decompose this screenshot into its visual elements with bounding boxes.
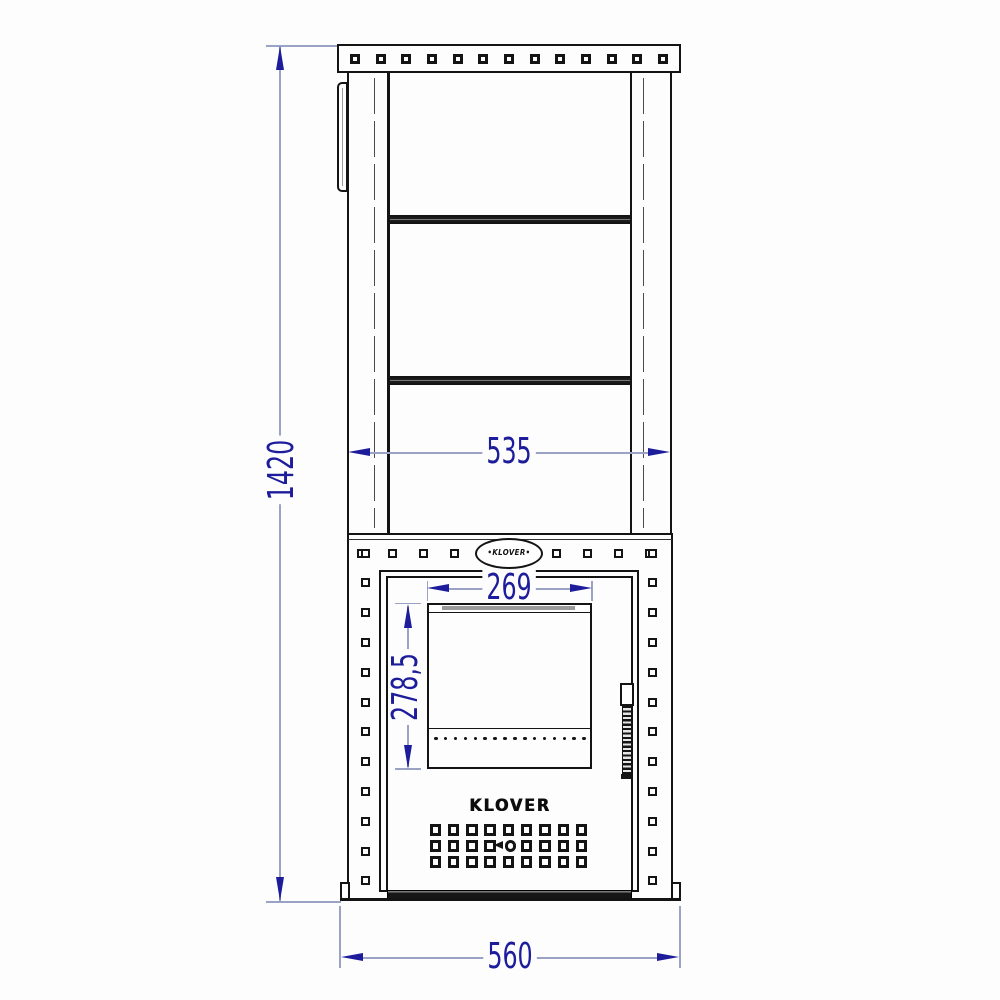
glass-vent-dot [483, 737, 487, 741]
glass-vent-dot [563, 737, 567, 741]
side-bracket-tab-line [342, 88, 343, 186]
body-hole [361, 876, 370, 885]
vent-hole [466, 856, 478, 868]
glass-vent-dot [474, 737, 478, 741]
body-hole [361, 698, 370, 707]
glass-vent-dot [434, 737, 438, 741]
dim-height-arrow-up [276, 46, 284, 70]
glass-vent-dot [464, 737, 468, 741]
dim-base-width-ext-right [679, 906, 681, 968]
body-hole [419, 549, 428, 558]
glass-vent-dot [572, 737, 576, 741]
body-top-holes-left [357, 549, 459, 558]
glass-vent-dot [493, 737, 497, 741]
chimney-top-flange [337, 44, 681, 73]
dim-base-width-arrow-right [657, 953, 679, 961]
body-right-holes [648, 549, 657, 886]
vent-hole [448, 840, 460, 852]
shaft-right-outer-edge [670, 71, 673, 534]
flange-hole [401, 54, 411, 64]
vent-hole [558, 856, 570, 868]
body-hole [648, 787, 657, 796]
body-hole [614, 549, 623, 558]
brand-badge-oval: •KLOVER• [475, 538, 543, 569]
dim-glass-height-arrow-down [404, 745, 412, 769]
body-hole [361, 549, 370, 558]
body-hole [361, 608, 370, 617]
door-handle-rod [622, 705, 632, 775]
glass-vent-dots [434, 736, 586, 742]
body-hole [361, 847, 370, 856]
body-hole [388, 549, 397, 558]
body-hole [648, 757, 657, 766]
body-hole [648, 847, 657, 856]
shaft-right-rivet-line [643, 78, 644, 528]
dim-shaft-width-arrow-right [648, 448, 670, 456]
shaft-left-outer-edge [347, 71, 350, 534]
door-handle-base [621, 774, 633, 779]
vent-hole [539, 840, 551, 852]
vent-hole [430, 824, 442, 836]
window-top-band-glass-strip [442, 606, 575, 611]
vent-hole [521, 856, 533, 868]
shaft-left-inner-edge [387, 71, 390, 534]
dim-height-arrow-down [276, 877, 284, 901]
vent-grid-row [430, 856, 588, 868]
dim-shaft-width-arrow-left [348, 448, 370, 456]
dim-glass-height-label: 278,5 [388, 649, 424, 725]
vent-hole [484, 856, 496, 868]
body-hole [648, 638, 657, 647]
vent-hole [539, 856, 551, 868]
window-separator-line [429, 728, 590, 730]
vent-hole [430, 840, 442, 852]
vent-hole [521, 824, 533, 836]
flange-hole [530, 54, 540, 64]
flange-hole [350, 54, 360, 64]
body-hole [648, 608, 657, 617]
flange-hole [427, 54, 437, 64]
flange-hole [478, 54, 488, 64]
vent-grid-row [430, 840, 588, 852]
glass-vent-dot [582, 737, 586, 741]
flange-hole [504, 54, 514, 64]
dim-shaft-width-label: 535 [482, 434, 535, 470]
flange-hole [607, 54, 617, 64]
vent-hole [466, 840, 478, 852]
dim-glass-height-arrow-up [404, 604, 412, 628]
glass-vent-dot [543, 737, 547, 741]
flange-hole [581, 54, 591, 64]
base-bottom-line [340, 898, 681, 902]
body-hole [648, 727, 657, 736]
body-hole [648, 876, 657, 885]
dim-glass-width-label: 269 [482, 570, 535, 606]
dim-base-width-label: 560 [483, 939, 536, 975]
vent-hole [576, 840, 588, 852]
dim-glass-width-arrow-right [570, 584, 592, 592]
body-hole [361, 817, 370, 826]
dim-base-width-arrow-left [341, 953, 363, 961]
body-left-holes [361, 549, 370, 886]
vent-hole [448, 824, 460, 836]
glass-vent-dot [444, 737, 448, 741]
glass-vent-dot [454, 737, 458, 741]
door-window [427, 603, 592, 769]
shaft-left-rivet-line [374, 78, 375, 528]
flange-hole [453, 54, 463, 64]
body-hole [648, 549, 657, 558]
vent-hole [576, 856, 588, 868]
vent-hole [448, 856, 460, 868]
vent-hole [466, 824, 478, 836]
vent-grid-row [430, 824, 588, 836]
vent-hole [521, 840, 533, 852]
brand-badge-text: •KLOVER• [487, 549, 530, 558]
body-top-holes-right [552, 549, 654, 558]
dim-glass-width-arrow-left [427, 584, 449, 592]
body-hole [552, 549, 561, 558]
keyhole-wedge [494, 841, 503, 849]
flange-hole [376, 54, 386, 64]
body-hole [361, 727, 370, 736]
vent-hole [430, 856, 442, 868]
body-hole [361, 668, 370, 677]
body-hole [648, 668, 657, 677]
dim-height-label: 1420 [264, 436, 300, 504]
body-hole [648, 698, 657, 707]
glass-vent-dot [513, 737, 517, 741]
body-hole [583, 549, 592, 558]
flange-hole [632, 54, 642, 64]
body-hole [648, 578, 657, 587]
body-hole [648, 817, 657, 826]
keyhole-vent [503, 840, 515, 852]
vent-hole [576, 824, 588, 836]
body-hole [450, 549, 459, 558]
body-hole [361, 638, 370, 647]
body-hole [361, 578, 370, 587]
flange-hole [555, 54, 565, 64]
dim-height-ext-bottom [266, 901, 341, 903]
body-hole [361, 757, 370, 766]
vent-hole [503, 856, 515, 868]
glass-vent-dot [533, 737, 537, 741]
shaft-right-inner-edge [630, 71, 633, 534]
flange-hole [658, 54, 668, 64]
door-handle-mount [620, 683, 634, 706]
window-top-band [429, 605, 590, 613]
air-vent-grid [430, 824, 588, 868]
glass-vent-dot [503, 737, 507, 741]
vent-hole [558, 840, 570, 852]
vent-hole [503, 824, 515, 836]
glass-vent-dot [523, 737, 527, 741]
shaft-crossbar-upper [390, 215, 630, 224]
vent-hole [484, 824, 496, 836]
vent-hole [539, 824, 551, 836]
vent-hole [558, 824, 570, 836]
keyhole-ring [505, 840, 517, 852]
body-hole [361, 787, 370, 796]
drawing-canvas: 1420 535 •KLOVER• 269 [0, 0, 1000, 1000]
glass-vent-dot [553, 737, 557, 741]
brand-logo-text: KLOVER [469, 795, 551, 815]
shaft-crossbar-lower [390, 376, 630, 385]
